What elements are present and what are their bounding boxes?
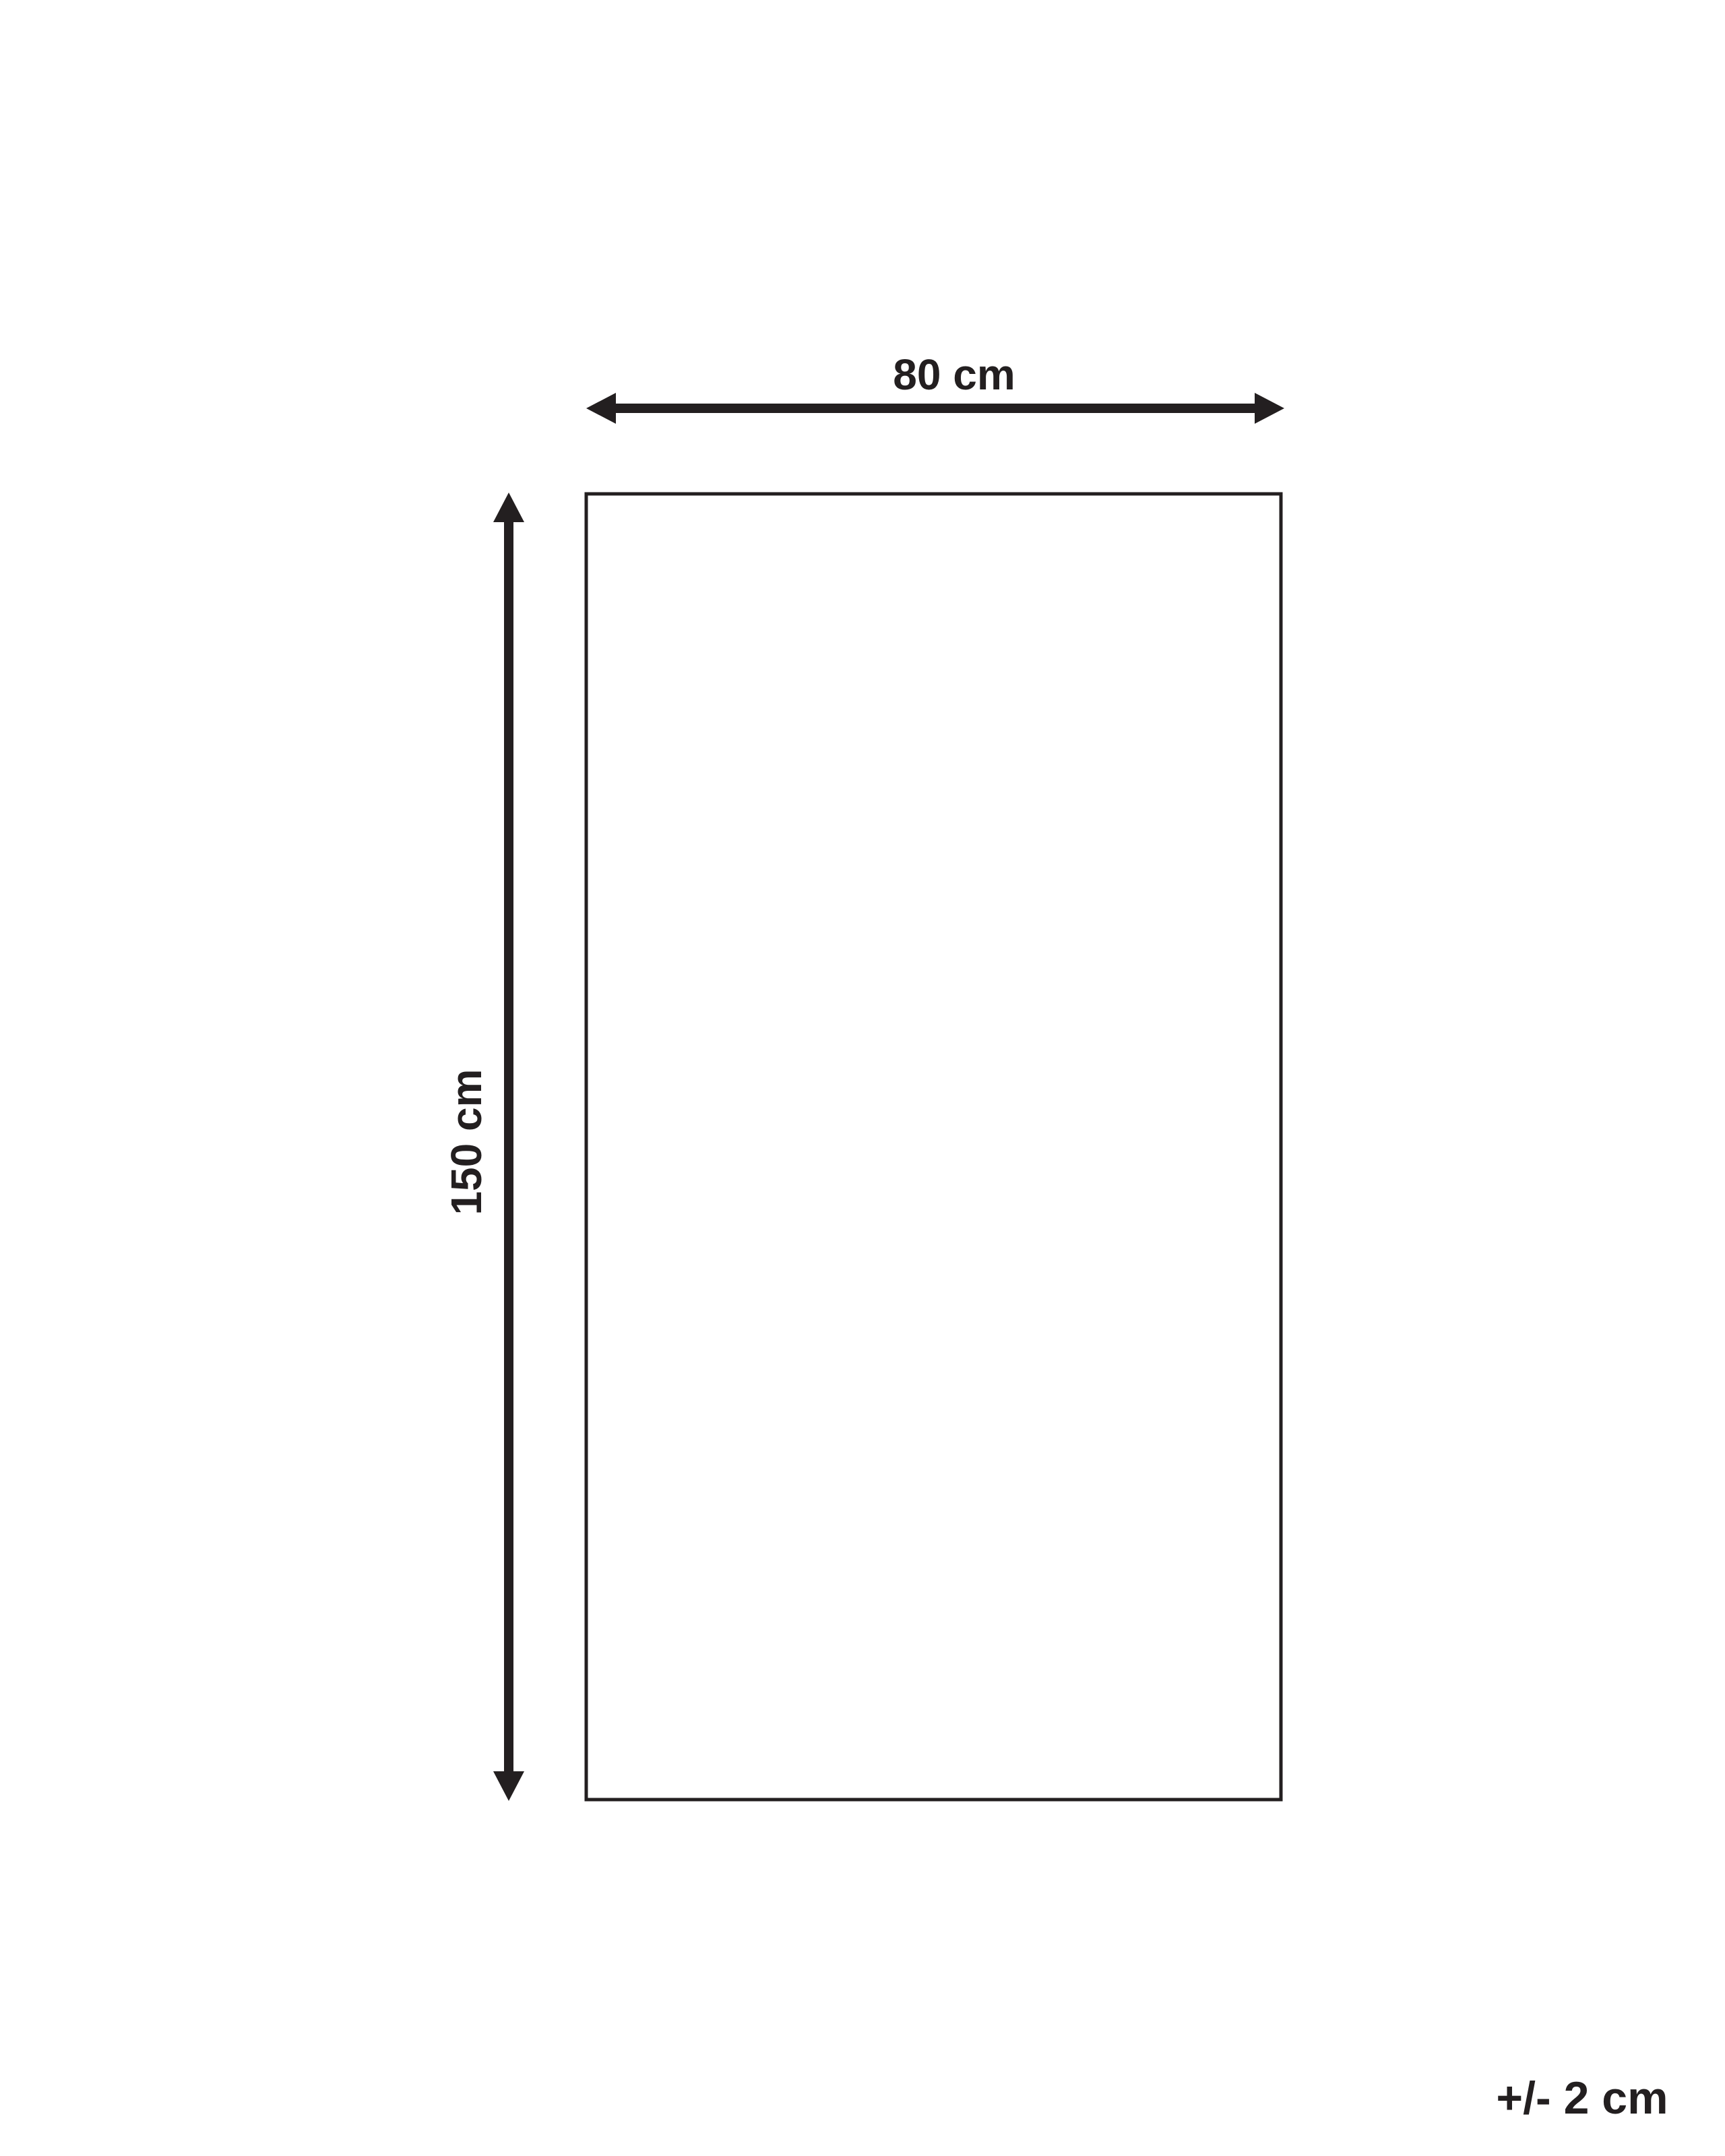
height-dimension-arrow	[493, 493, 524, 1801]
height-dimension-label: 150 cm	[445, 1069, 488, 1215]
product-outline-rect	[586, 494, 1281, 1800]
dimension-diagram-graphics	[0, 0, 1725, 2156]
tolerance-label: +/- 2 cm	[1496, 2075, 1668, 2121]
height-arrow-top-head-icon	[493, 493, 524, 522]
width-arrow-left-head-icon	[586, 393, 616, 424]
width-arrow-right-head-icon	[1255, 393, 1284, 424]
height-arrow-bottom-head-icon	[493, 1771, 524, 1801]
width-dimension-label: 80 cm	[893, 353, 1015, 396]
dimension-diagram: 80 cm 150 cm +/- 2 cm	[0, 0, 1725, 2156]
